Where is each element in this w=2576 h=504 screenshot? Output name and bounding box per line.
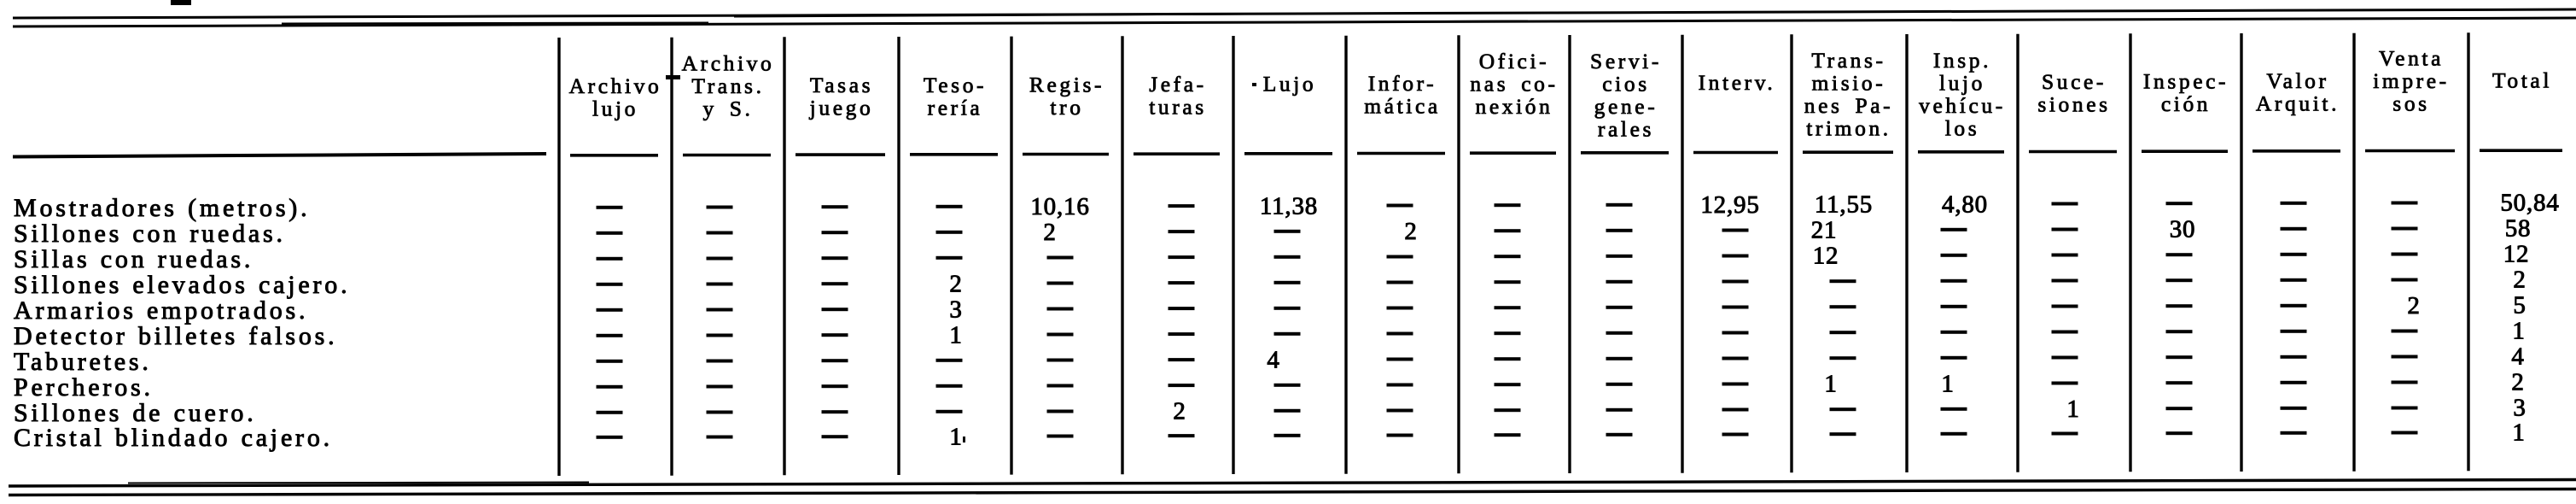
svg-text:21: 21	[1811, 217, 1838, 244]
svg-text:3: 3	[2513, 395, 2526, 422]
svg-text:Venta: Venta	[2379, 46, 2444, 71]
svg-text:Regis-: Regis-	[1029, 72, 1104, 97]
svg-text:vehícu-: vehícu-	[1919, 93, 2006, 118]
svg-text:Valor: Valor	[2266, 68, 2328, 93]
svg-text:Trans.: Trans.	[691, 73, 764, 98]
svg-text:y S.: y S.	[702, 97, 753, 121]
svg-text:Sillas con ruedas.: Sillas con ruedas.	[14, 245, 254, 273]
svg-text:50,84: 50,84	[2500, 190, 2559, 217]
svg-text:Servi-: Servi-	[1590, 49, 1662, 73]
svg-text:Insp.: Insp.	[1933, 48, 1991, 73]
svg-text:1: 1	[2512, 318, 2525, 345]
svg-text:12: 12	[1813, 243, 1839, 270]
svg-text:nas co-: nas co-	[1470, 71, 1558, 96]
svg-text:tro: tro	[1050, 95, 1083, 120]
svg-text:mática: mática	[1364, 94, 1441, 119]
svg-text:ción: ción	[2161, 91, 2211, 116]
svg-text:11,55: 11,55	[1815, 191, 1873, 219]
svg-text:Armarios empotrados.: Armarios empotrados.	[14, 296, 308, 325]
svg-text:Archivo: Archivo	[569, 73, 662, 98]
svg-text:lujo: lujo	[592, 97, 638, 121]
svg-text:2: 2	[1173, 398, 1186, 425]
svg-text:nexión: nexión	[1475, 94, 1553, 119]
svg-text:30: 30	[2170, 216, 2196, 243]
svg-text:Percheros.: Percheros.	[14, 373, 154, 401]
svg-text:lujo: lujo	[1939, 70, 1985, 95]
svg-text:rería: rería	[928, 95, 983, 120]
svg-text:2: 2	[949, 270, 962, 297]
svg-text:Inspec-: Inspec-	[2143, 69, 2229, 94]
svg-text:turas: turas	[1149, 95, 1207, 120]
svg-text:4: 4	[1267, 346, 1279, 373]
svg-text:Infor-: Infor-	[1368, 71, 1437, 96]
svg-text:2: 2	[2511, 369, 2524, 396]
svg-text:Archivo: Archivo	[682, 51, 775, 76]
svg-text:Jefa-: Jefa-	[1149, 72, 1207, 97]
svg-text:Ofici-: Ofici-	[1479, 49, 1550, 73]
svg-text:58: 58	[2505, 215, 2532, 243]
svg-text:2: 2	[2513, 267, 2526, 294]
svg-text:1: 1	[1941, 370, 1954, 397]
svg-text:11,38: 11,38	[1260, 192, 1318, 220]
svg-text:juego: juego	[809, 96, 874, 120]
svg-text:Sillones elevados cajero.: Sillones elevados cajero.	[14, 271, 350, 299]
svg-text:Teso-: Teso-	[924, 73, 987, 97]
svg-text:Detector billetes falsos.: Detector billetes falsos.	[14, 322, 337, 350]
svg-text:misio-: misio-	[1812, 71, 1886, 96]
svg-text:los: los	[1945, 115, 1980, 140]
svg-text:12: 12	[2503, 241, 2530, 268]
svg-text:Trans-: Trans-	[1811, 48, 1885, 73]
svg-text:2: 2	[2407, 292, 2420, 319]
svg-text:12,95: 12,95	[1700, 191, 1759, 219]
svg-text:1: 1	[1824, 371, 1837, 398]
svg-text:rales: rales	[1598, 117, 1654, 142]
svg-text:trimon.: trimon.	[1806, 116, 1891, 141]
svg-text:1: 1	[949, 321, 962, 349]
svg-text:2: 2	[1404, 218, 1417, 245]
svg-text:1: 1	[2066, 396, 2079, 423]
svg-text:Total: Total	[2492, 67, 2552, 92]
svg-text:Arquit.: Arquit.	[2256, 91, 2340, 116]
svg-text:3: 3	[949, 296, 962, 323]
svg-text:4,80: 4,80	[1942, 190, 1988, 218]
svg-text:Lujo: Lujo	[1263, 72, 1317, 97]
svg-text:impre-: impre-	[2373, 68, 2450, 93]
svg-text:1: 1	[2512, 419, 2525, 447]
svg-text:10,16: 10,16	[1030, 193, 1089, 220]
svg-text:1: 1	[949, 423, 962, 450]
svg-text:cios: cios	[1602, 72, 1649, 97]
svg-text:Suce-: Suce-	[2042, 69, 2107, 94]
svg-text:Cristal blindado cajero.: Cristal blindado cajero.	[14, 424, 333, 452]
svg-text:Interv.: Interv.	[1699, 70, 1776, 95]
svg-text:siones: siones	[2037, 91, 2110, 116]
svg-text:Mostradores (metros).: Mostradores (metros).	[14, 194, 310, 222]
svg-text:4: 4	[2511, 343, 2524, 371]
svg-text:Taburetes.: Taburetes.	[14, 348, 152, 376]
svg-text:gene-: gene-	[1594, 94, 1658, 119]
svg-text:Sillones con ruedas.: Sillones con ruedas.	[14, 220, 286, 248]
svg-text:2: 2	[1043, 219, 1056, 246]
svg-text:nes Pa-: nes Pa-	[1804, 93, 1894, 118]
svg-text:5: 5	[2513, 292, 2526, 319]
svg-text:sos: sos	[2392, 91, 2429, 116]
svg-text:Tasas: Tasas	[810, 73, 873, 97]
